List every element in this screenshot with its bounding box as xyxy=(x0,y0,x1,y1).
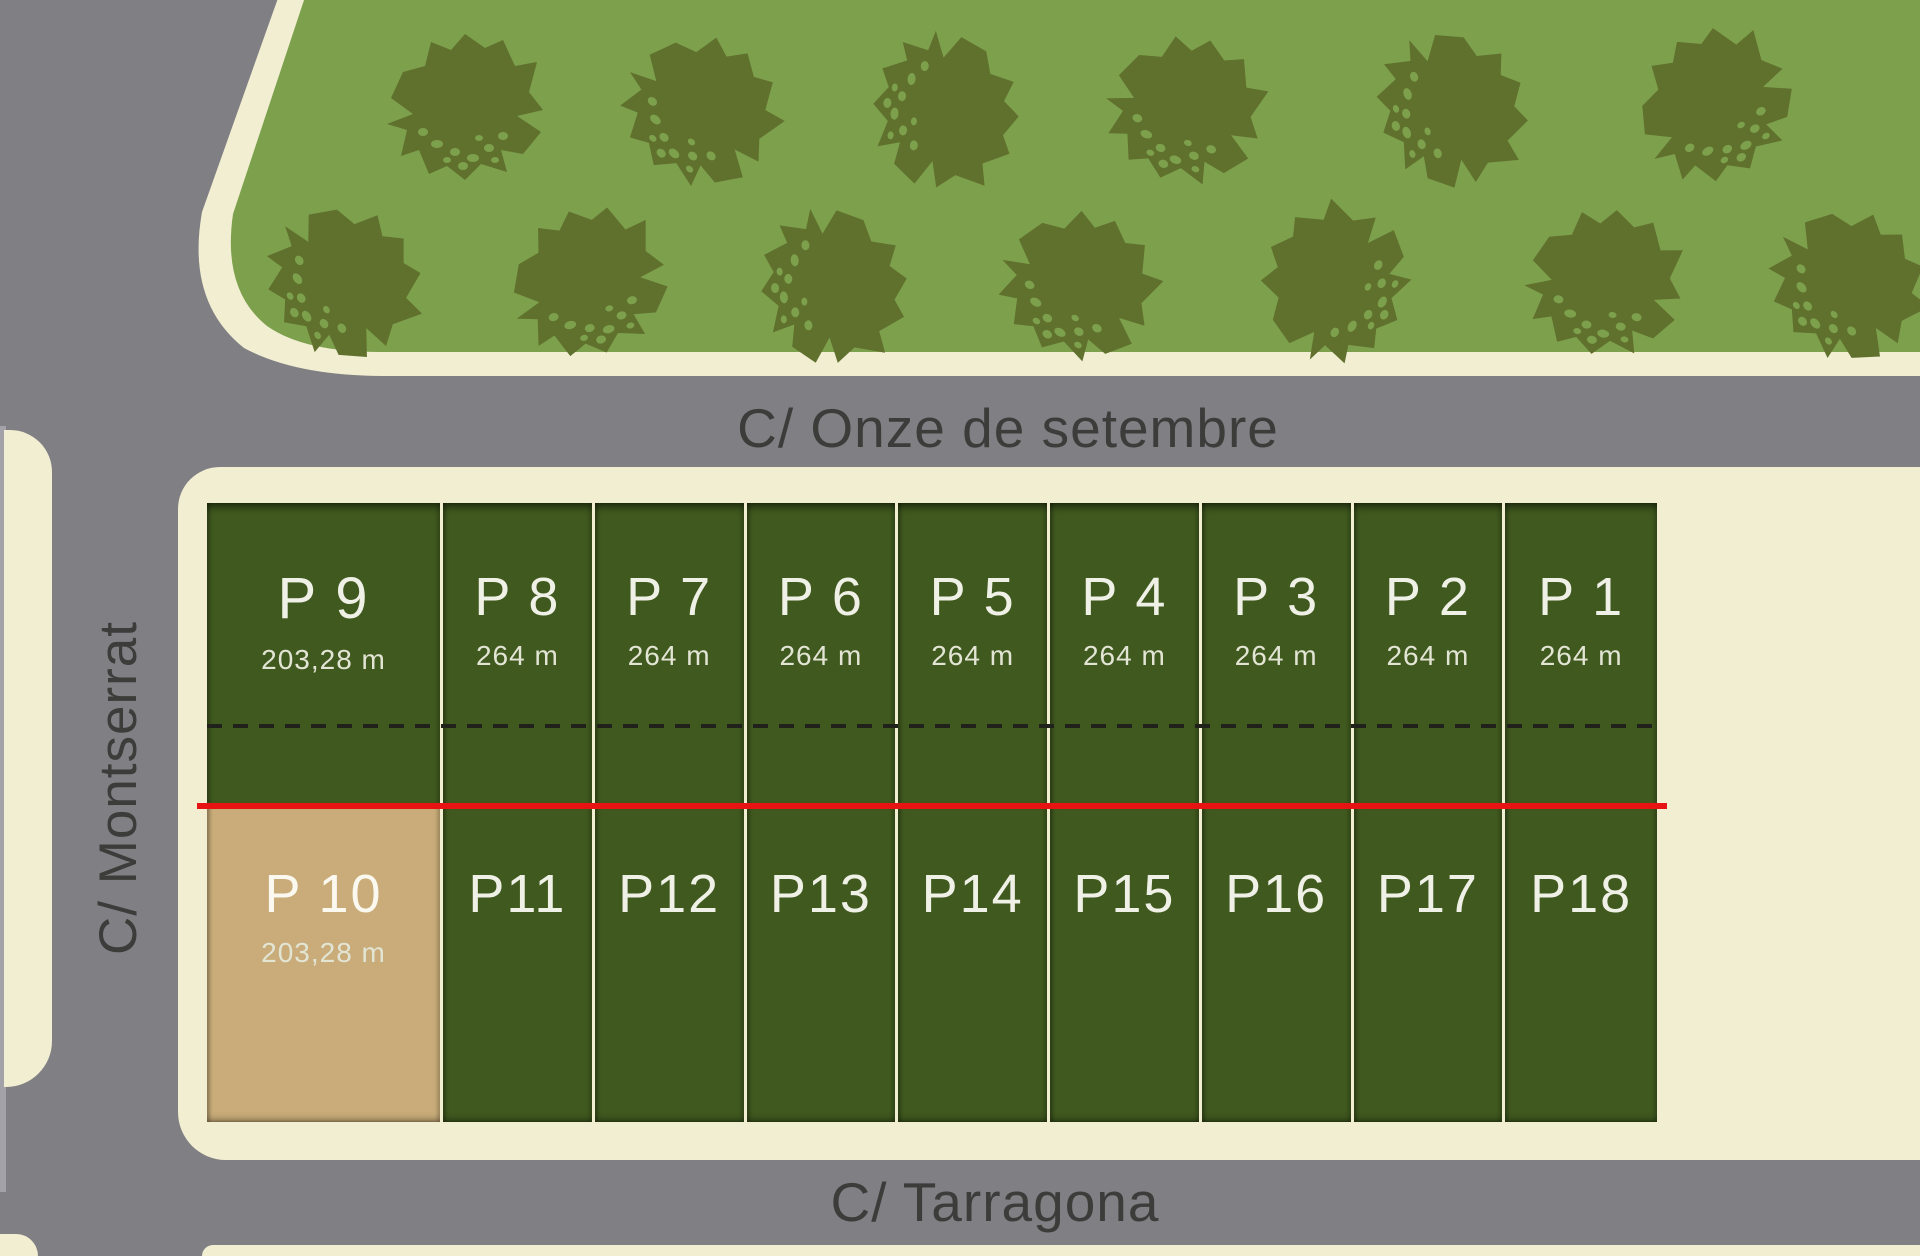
plot-id-label: P11 xyxy=(468,866,566,923)
south-west-curb-corner xyxy=(0,1234,38,1256)
plot-id-label: P 8 xyxy=(474,569,560,626)
plot-id-label: P 3 xyxy=(1233,569,1319,626)
plot-P14[interactable]: P14 xyxy=(898,806,1050,1122)
setback-dashed-line xyxy=(207,724,1657,728)
plot-id-label: P15 xyxy=(1073,866,1175,923)
plot-area-label: 264 m xyxy=(1235,640,1318,672)
plot-id-label: P 1 xyxy=(1538,569,1624,626)
plot-id-label: P12 xyxy=(618,866,720,923)
plot-id-label: P13 xyxy=(770,866,872,923)
plot-area-label: 264 m xyxy=(1386,640,1469,672)
plot-area-label: 264 m xyxy=(628,640,711,672)
plot-P11[interactable]: P11 xyxy=(443,806,595,1122)
plot-area-label: 203,28 m xyxy=(261,644,386,676)
plot-P4[interactable]: P 4264 m xyxy=(1050,503,1202,806)
plot-P3[interactable]: P 3264 m xyxy=(1202,503,1354,806)
plot-P17[interactable]: P17 xyxy=(1354,806,1506,1122)
plot-area-label: 264 m xyxy=(1083,640,1166,672)
plot-id-label: P 10 xyxy=(264,866,382,923)
street-label-onze-de-setembre: C/ Onze de setembre xyxy=(708,396,1308,460)
plot-P15[interactable]: P15 xyxy=(1050,806,1202,1122)
street-label-tarragona: C/ Tarragona xyxy=(795,1170,1195,1234)
plot-id-label: P 9 xyxy=(277,569,369,630)
plot-id-label: P 4 xyxy=(1081,569,1167,626)
plot-id-label: P 5 xyxy=(930,569,1016,626)
plot-id-label: P16 xyxy=(1225,866,1327,923)
plot-id-label: P 6 xyxy=(778,569,864,626)
plot-id-label: P14 xyxy=(922,866,1024,923)
plot-P12[interactable]: P12 xyxy=(595,806,747,1122)
plot-P16[interactable]: P16 xyxy=(1202,806,1354,1122)
plots-grid: P 9203,28 mP 8264 mP 7264 mP 6264 mP 526… xyxy=(207,503,1657,1122)
plot-P6[interactable]: P 6264 m xyxy=(747,503,899,806)
street-label-montserrat: C/ Montserrat xyxy=(88,478,152,1098)
park-area xyxy=(0,0,1920,385)
plot-id-label: P 7 xyxy=(626,569,712,626)
plot-id-label: P 2 xyxy=(1385,569,1471,626)
plot-P5[interactable]: P 5264 m xyxy=(898,503,1050,806)
plot-area-label: 203,28 m xyxy=(261,937,386,969)
plot-id-label: P17 xyxy=(1377,866,1479,923)
plot-P1[interactable]: P 1264 m xyxy=(1505,503,1657,806)
plot-area-label: 264 m xyxy=(931,640,1014,672)
west-curb-block xyxy=(4,430,52,1087)
plot-P9[interactable]: P 9203,28 m xyxy=(207,503,443,806)
plot-id-label: P18 xyxy=(1530,866,1632,923)
sector-divider-red-line xyxy=(197,803,1667,809)
plot-area-label: 264 m xyxy=(1540,640,1623,672)
plot-P10[interactable]: P 10203,28 m xyxy=(207,806,443,1122)
plot-P7[interactable]: P 7264 m xyxy=(595,503,747,806)
plot-area-label: 264 m xyxy=(476,640,559,672)
site-plan-map: P 9203,28 mP 8264 mP 7264 mP 6264 mP 526… xyxy=(0,0,1920,1256)
plot-P2[interactable]: P 2264 m xyxy=(1354,503,1506,806)
plot-P8[interactable]: P 8264 m xyxy=(443,503,595,806)
south-curb-block xyxy=(202,1245,1920,1256)
plot-area-label: 264 m xyxy=(779,640,862,672)
plot-P13[interactable]: P13 xyxy=(747,806,899,1122)
plot-P18[interactable]: P18 xyxy=(1505,806,1657,1122)
